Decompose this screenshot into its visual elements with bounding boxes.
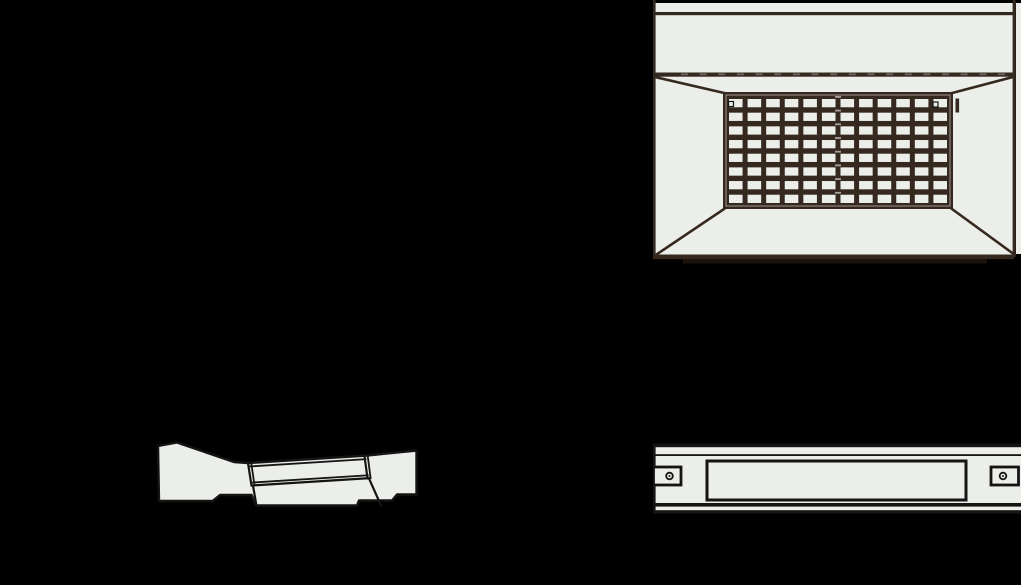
grille-hole <box>933 167 947 175</box>
grille-hole <box>859 167 873 175</box>
grille-center-dash <box>835 137 841 139</box>
grille-hole <box>766 195 780 203</box>
grille-hole <box>896 195 910 203</box>
grille-hole <box>748 195 762 203</box>
grille-hole <box>766 181 780 189</box>
grille-screw-right-icon <box>933 102 938 107</box>
seam-tick-mark <box>942 73 949 75</box>
grille-hole <box>841 113 855 121</box>
grille-hole <box>785 99 799 107</box>
grille-center-dash <box>835 96 841 98</box>
grille-hole <box>748 113 762 121</box>
grille-hole <box>859 140 873 148</box>
grille-center-dash <box>835 110 841 112</box>
grille-hole <box>785 113 799 121</box>
grille-hole <box>915 181 929 189</box>
grille-hole <box>822 140 836 148</box>
seam-tick-mark <box>868 73 875 75</box>
seam-tick-mark <box>756 73 763 75</box>
grille-hole <box>822 113 836 121</box>
grille-hole <box>785 195 799 203</box>
mounting-tab-left <box>654 467 682 485</box>
side-bottom-edge <box>653 510 1021 513</box>
perspective-view <box>150 438 430 513</box>
grille-hole <box>841 167 855 175</box>
grille-hole <box>859 181 873 189</box>
grille-hole <box>803 167 817 175</box>
grille-screw-left-icon <box>729 102 734 107</box>
grille-hole <box>933 195 947 203</box>
seam-tick-mark <box>923 73 930 75</box>
grille-hole <box>915 167 929 175</box>
side-top-seam-line <box>653 454 1021 456</box>
seam-tick-mark <box>774 73 781 75</box>
grille-hole <box>915 140 929 148</box>
grille-hole <box>766 167 780 175</box>
side-view <box>653 440 1021 518</box>
grille-hole <box>748 140 762 148</box>
grille-hole <box>822 99 836 107</box>
side-bottom-seam-line <box>653 503 1021 507</box>
front-view <box>653 0 1021 264</box>
grille-hole <box>841 140 855 148</box>
grille-hole <box>841 195 855 203</box>
grille-hole <box>822 154 836 162</box>
grille-hole <box>933 154 947 162</box>
grille-right-clip <box>956 99 960 113</box>
seam-tick-mark <box>700 73 707 75</box>
seam-tick-mark <box>886 73 893 75</box>
grille-hole <box>785 140 799 148</box>
grille-hole <box>748 154 762 162</box>
grille-hole <box>915 113 929 121</box>
seam-tick-mark <box>830 73 837 75</box>
grille-hole <box>915 154 929 162</box>
grille <box>723 92 959 209</box>
grille-hole <box>729 126 743 134</box>
grille-center-dash <box>835 165 841 167</box>
front-right-edge <box>1013 0 1016 257</box>
grille-hole <box>803 126 817 134</box>
grille-hole <box>729 195 743 203</box>
grille-hole <box>896 140 910 148</box>
seam-tick-mark <box>718 73 725 75</box>
grille-hole <box>766 126 780 134</box>
grille-hole <box>803 99 817 107</box>
grille-hole <box>878 181 892 189</box>
grille-hole <box>896 99 910 107</box>
side-recess-plate <box>707 461 966 500</box>
grille-hole <box>841 181 855 189</box>
front-bottom-edge <box>654 255 1014 260</box>
grille-hole <box>841 99 855 107</box>
grille-hole <box>915 195 929 203</box>
seam-tick-mark <box>812 73 819 75</box>
grille-hole <box>896 167 910 175</box>
grille-hole <box>896 126 910 134</box>
grille-hole <box>859 195 873 203</box>
grille-hole <box>878 167 892 175</box>
seam-tick-mark <box>979 73 986 75</box>
grille-hole <box>878 99 892 107</box>
grille-hole <box>785 154 799 162</box>
grille-hole <box>748 167 762 175</box>
front-base-foot <box>683 259 987 263</box>
grille-hole <box>803 140 817 148</box>
grille-hole <box>896 181 910 189</box>
grille-center-dash <box>835 178 841 180</box>
grille-hole <box>803 195 817 203</box>
grille-hole <box>766 99 780 107</box>
grille-hole <box>748 181 762 189</box>
grille-hole <box>933 181 947 189</box>
front-right-sliver <box>1016 3 1021 254</box>
grille-hole <box>766 140 780 148</box>
grille-hole <box>803 113 817 121</box>
grille-hole <box>878 140 892 148</box>
grille-hole <box>896 113 910 121</box>
front-top-seam-line <box>655 12 1013 15</box>
grille-frame <box>723 92 953 209</box>
grille-hole <box>859 113 873 121</box>
technical-drawing-canvas <box>0 0 1021 585</box>
front-left-edge <box>653 0 656 259</box>
grille-hole <box>785 181 799 189</box>
grille-center-dash <box>835 123 841 125</box>
grille-hole <box>878 126 892 134</box>
grille-hole <box>933 113 947 121</box>
seam-tick-mark <box>793 73 800 75</box>
grille-hole <box>841 126 855 134</box>
grille-hole <box>729 181 743 189</box>
grille-hole <box>915 99 929 107</box>
grille-hole <box>785 126 799 134</box>
grille-hole <box>841 154 855 162</box>
grille-center-dash <box>835 192 841 194</box>
grille-hole <box>729 167 743 175</box>
grille-hole <box>785 167 799 175</box>
grille-hole <box>859 154 873 162</box>
grille-hole <box>915 126 929 134</box>
grille-hole <box>766 113 780 121</box>
grille-hole <box>822 195 836 203</box>
seam-tick-mark <box>905 73 912 75</box>
grille-hole <box>822 167 836 175</box>
grille-hole <box>878 154 892 162</box>
grille-hole <box>748 99 762 107</box>
grille-hole <box>803 181 817 189</box>
grille-hole <box>878 113 892 121</box>
grille-hole <box>729 154 743 162</box>
mounting-tab-right <box>991 467 1019 485</box>
grille-hole <box>933 126 947 134</box>
seam-tick-mark <box>681 73 688 75</box>
grille-hole <box>822 181 836 189</box>
grille-hole <box>896 154 910 162</box>
grille-hole <box>803 154 817 162</box>
grille-center-dash <box>835 151 841 153</box>
seam-tick-mark <box>737 73 744 75</box>
grille-hole <box>822 126 836 134</box>
grille-hole <box>766 154 780 162</box>
grille-hole <box>748 126 762 134</box>
side-top-edge <box>653 444 1021 448</box>
seam-tick-mark <box>961 73 968 75</box>
grille-hole <box>933 140 947 148</box>
grille-hole <box>859 126 873 134</box>
seam-tick-mark <box>849 73 856 75</box>
grille-hole <box>729 113 743 121</box>
grille-hole <box>878 195 892 203</box>
grille-hole <box>859 99 873 107</box>
seam-tick-mark <box>998 73 1005 75</box>
grille-hole <box>729 140 743 148</box>
